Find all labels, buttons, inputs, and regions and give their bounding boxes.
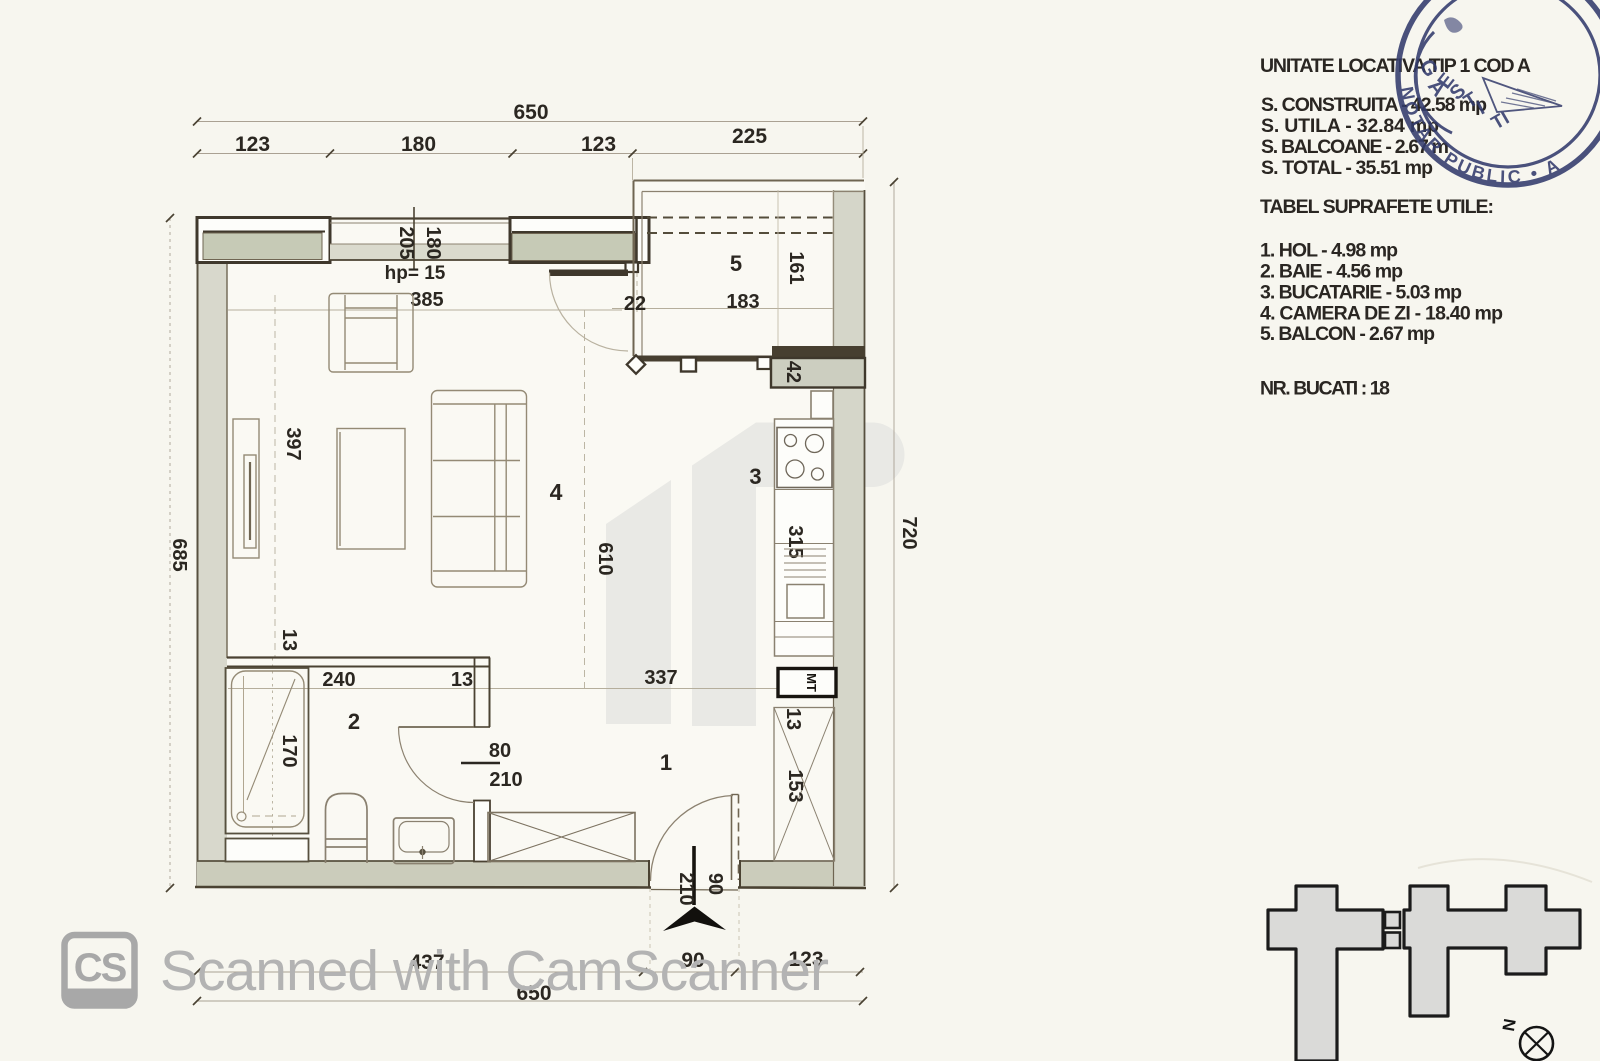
svg-text:161: 161 [785,251,807,284]
svg-text:183: 183 [726,291,759,313]
svg-text:5. BALCON - 2.67 mp: 5. BALCON - 2.67 mp [1260,323,1435,345]
svg-text:180: 180 [401,133,436,156]
svg-text:720: 720 [898,516,920,549]
svg-text:S. TOTAL - 35.51 mp: S. TOTAL - 35.51 mp [1261,157,1433,179]
svg-text:210: 210 [489,769,522,791]
svg-text:MT: MT [804,673,819,692]
svg-text:80: 80 [489,740,511,762]
svg-text:205: 205 [395,226,417,259]
svg-text:3: 3 [749,464,761,489]
svg-text:4. CAMERA DE ZI - 18.40 mp: 4. CAMERA DE ZI - 18.40 mp [1260,303,1503,325]
svg-text:13: 13 [278,629,300,651]
svg-text:123: 123 [581,133,616,156]
svg-text:170: 170 [278,734,300,767]
svg-text:123: 123 [235,133,270,156]
svg-text:610: 610 [594,542,616,575]
svg-text:13: 13 [782,708,804,730]
svg-text:2: 2 [348,709,360,734]
svg-text:42: 42 [782,361,804,383]
svg-text:1. HOL - 4.98 mp: 1. HOL - 4.98 mp [1260,240,1398,262]
svg-text:5: 5 [730,251,742,276]
svg-text:337: 337 [644,667,677,689]
svg-text:385: 385 [410,289,443,311]
svg-text:13: 13 [451,669,473,691]
svg-text:CS: CS [74,946,127,990]
svg-text:3. BUCATARIE - 5.03 mp: 3. BUCATARIE - 5.03 mp [1260,282,1462,304]
svg-text:153: 153 [784,769,806,802]
svg-text:1: 1 [660,750,672,775]
svg-text:210: 210 [675,872,697,905]
svg-text:2. BAIE - 4.56 mp: 2. BAIE - 4.56 mp [1260,261,1403,283]
svg-text:hp= 15: hp= 15 [385,263,446,284]
svg-text:TABEL SUPRAFETE UTILE:: TABEL SUPRAFETE UTILE: [1260,196,1494,218]
svg-text:397: 397 [282,427,304,460]
svg-text:Scanned with CamScanner: Scanned with CamScanner [160,939,829,1003]
svg-text:225: 225 [732,125,767,148]
svg-text:650: 650 [513,101,548,124]
svg-text:22: 22 [624,293,646,315]
svg-text:315: 315 [784,525,806,558]
svg-text:180: 180 [422,226,444,259]
svg-text:NR. BUCATI : 18: NR. BUCATI : 18 [1260,378,1390,400]
svg-text:685: 685 [168,538,190,571]
svg-text:240: 240 [322,669,355,691]
svg-text:4: 4 [550,479,563,505]
svg-text:90: 90 [704,873,726,895]
